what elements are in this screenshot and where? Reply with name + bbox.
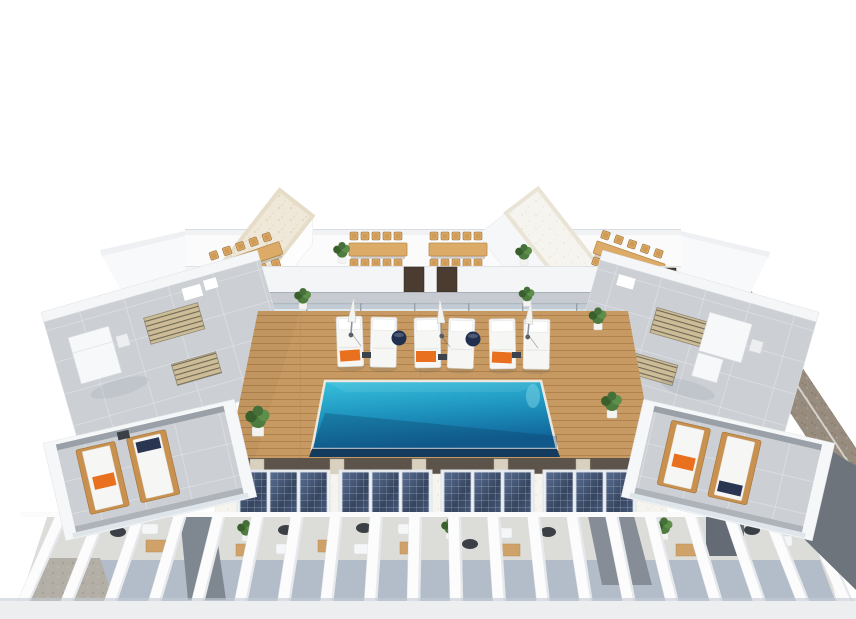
render-canvas: Aerial 3D architectural render of a roof… bbox=[0, 0, 856, 619]
solar-panel bbox=[444, 472, 471, 514]
chair bbox=[452, 259, 460, 267]
orange-towel bbox=[340, 349, 361, 361]
chair bbox=[474, 232, 482, 240]
lower-facade bbox=[0, 598, 856, 619]
pouf-highlight bbox=[468, 334, 478, 338]
swimming-pool bbox=[309, 381, 560, 457]
solar-panel bbox=[300, 472, 327, 514]
chair bbox=[452, 232, 460, 240]
chair bbox=[441, 259, 449, 267]
door bbox=[404, 267, 424, 292]
chair bbox=[372, 232, 380, 240]
chair bbox=[430, 259, 438, 267]
chair bbox=[383, 259, 391, 267]
chair bbox=[383, 232, 391, 240]
table-shadow bbox=[351, 256, 405, 259]
pool-steps-ripple bbox=[526, 384, 540, 408]
solar-panel bbox=[402, 472, 429, 514]
chair bbox=[463, 232, 471, 240]
beach-bag bbox=[362, 352, 371, 358]
deck-lounger bbox=[335, 316, 365, 372]
solar-roof bbox=[214, 470, 668, 516]
solar-array bbox=[339, 470, 432, 516]
facade-strip bbox=[0, 601, 856, 619]
wood-mat bbox=[500, 544, 520, 556]
pool-overflow-rim bbox=[309, 449, 560, 457]
wood-mat bbox=[146, 540, 166, 552]
navy-pouf-table bbox=[466, 332, 481, 347]
chair bbox=[394, 232, 402, 240]
solar-panel bbox=[372, 472, 399, 514]
solar-array bbox=[441, 470, 534, 516]
door bbox=[437, 267, 457, 292]
chair bbox=[350, 259, 358, 267]
chair bbox=[474, 259, 482, 267]
pergola-beam bbox=[407, 514, 422, 602]
orange-towel bbox=[416, 351, 436, 362]
beach-bag bbox=[512, 352, 521, 358]
wood-mat bbox=[676, 544, 696, 556]
beach-bag bbox=[438, 354, 447, 360]
solar-panel bbox=[474, 472, 501, 514]
dining-set-center-right bbox=[429, 232, 487, 267]
pouf-highlight bbox=[394, 333, 404, 337]
dining-table bbox=[429, 243, 487, 256]
chair bbox=[463, 259, 471, 267]
dining-set-center-left bbox=[349, 232, 407, 267]
chair bbox=[372, 259, 380, 267]
deck-lounger bbox=[413, 318, 442, 373]
orange-towel bbox=[492, 351, 513, 363]
chair bbox=[361, 232, 369, 240]
pool-deck bbox=[228, 287, 655, 458]
navy-pouf-table bbox=[392, 331, 407, 346]
solar-panel bbox=[576, 472, 603, 514]
solar-panel bbox=[546, 472, 573, 514]
solar-panel bbox=[342, 472, 369, 514]
dining-table bbox=[349, 243, 407, 256]
chair bbox=[430, 232, 438, 240]
chair bbox=[361, 259, 369, 267]
deck-lounger bbox=[369, 317, 398, 372]
chair bbox=[441, 232, 449, 240]
water-sheen bbox=[325, 381, 541, 392]
dark-parasol bbox=[462, 539, 478, 549]
solar-panel bbox=[270, 472, 297, 514]
table-shadow bbox=[431, 256, 485, 259]
chair bbox=[350, 232, 358, 240]
terrace-sofa bbox=[142, 524, 158, 534]
rooftop-render: Aerial 3D architectural render of a roof… bbox=[0, 0, 856, 619]
pergola-beam bbox=[448, 514, 463, 602]
deck-lounger bbox=[488, 319, 517, 374]
solar-panel bbox=[504, 472, 531, 514]
chair bbox=[394, 259, 402, 267]
